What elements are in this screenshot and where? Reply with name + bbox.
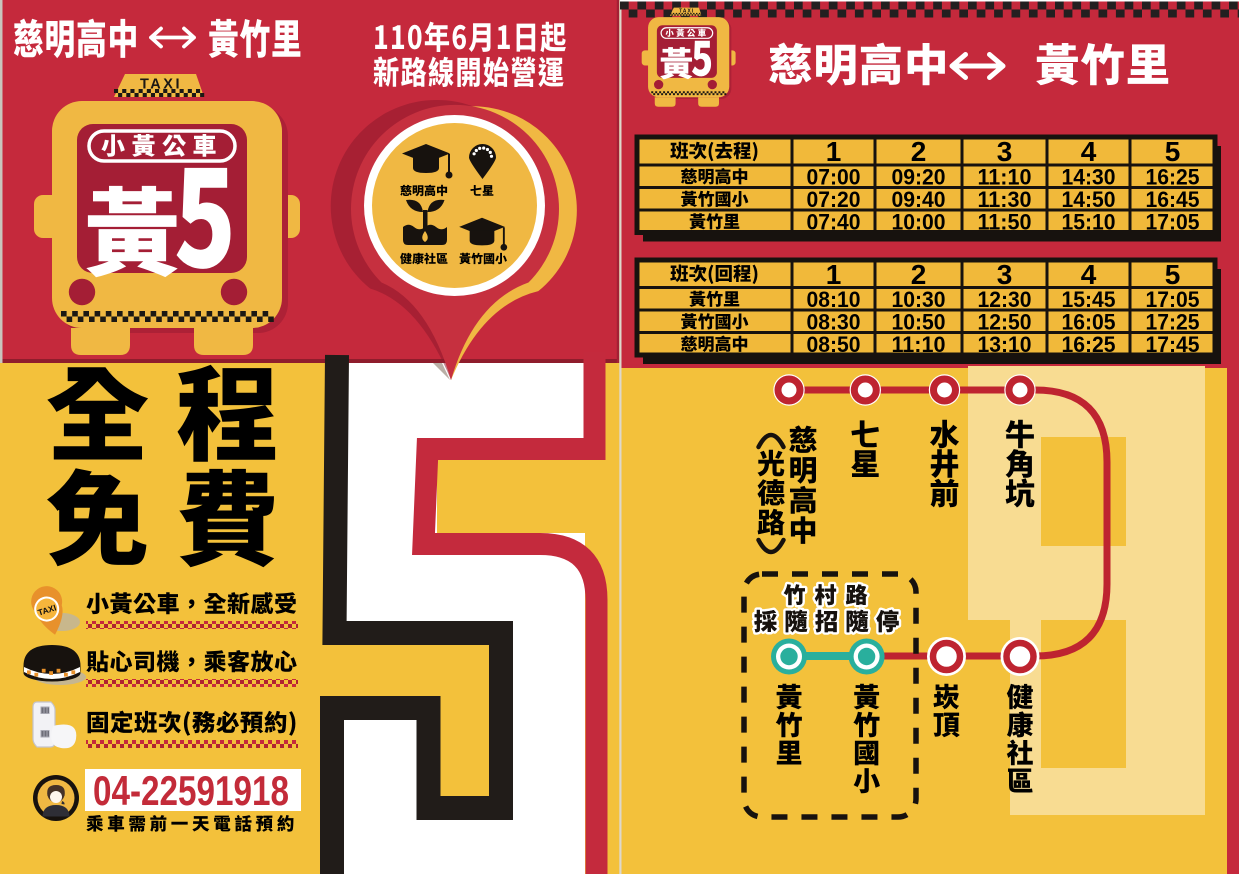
svg-text:11:50: 11:50: [978, 209, 1032, 234]
svg-text:4: 4: [1081, 136, 1097, 167]
svg-text:17:05: 17:05: [1146, 209, 1200, 234]
svg-text:10:30: 10:30: [892, 287, 946, 312]
svg-text:08:10: 08:10: [807, 287, 861, 312]
svg-text:3: 3: [997, 136, 1013, 167]
svg-text:14:50: 14:50: [1062, 187, 1116, 212]
svg-text:10:00: 10:00: [892, 209, 946, 234]
svg-text:11:10: 11:10: [978, 164, 1032, 189]
svg-text:2: 2: [911, 136, 927, 167]
svg-text:1: 1: [826, 136, 842, 167]
svg-text:17:05: 17:05: [1146, 287, 1200, 312]
svg-text:08:30: 08:30: [807, 309, 861, 334]
svg-text:09:20: 09:20: [892, 164, 946, 189]
svg-text:15:45: 15:45: [1062, 287, 1116, 312]
svg-text:15:10: 15:10: [1062, 209, 1116, 234]
svg-text:12:30: 12:30: [978, 287, 1032, 312]
svg-text:07:00: 07:00: [807, 164, 861, 189]
svg-text:4: 4: [1081, 259, 1097, 290]
svg-text:16:05: 16:05: [1062, 309, 1116, 334]
svg-text:16:45: 16:45: [1146, 187, 1200, 212]
svg-text:13:10: 13:10: [978, 332, 1032, 357]
svg-text:16:25: 16:25: [1062, 332, 1116, 357]
svg-text:11:10: 11:10: [892, 332, 946, 357]
svg-text:2: 2: [911, 259, 927, 290]
svg-text:09:40: 09:40: [892, 187, 946, 212]
svg-text:3: 3: [997, 259, 1013, 290]
svg-text:17:45: 17:45: [1146, 332, 1200, 357]
svg-text:11:30: 11:30: [978, 187, 1032, 212]
svg-text:04-22591918: 04-22591918: [93, 767, 289, 814]
svg-text:07:20: 07:20: [807, 187, 861, 212]
svg-text:5: 5: [1165, 259, 1181, 290]
svg-text:5: 5: [1165, 136, 1181, 167]
svg-text:14:30: 14:30: [1062, 164, 1116, 189]
svg-text:17:25: 17:25: [1146, 309, 1200, 334]
svg-text:07:40: 07:40: [807, 209, 861, 234]
svg-text:08:50: 08:50: [807, 332, 861, 357]
svg-text:12:50: 12:50: [978, 309, 1032, 334]
svg-text:16:25: 16:25: [1146, 164, 1200, 189]
svg-text:10:50: 10:50: [892, 309, 946, 334]
svg-text:1: 1: [826, 259, 842, 290]
